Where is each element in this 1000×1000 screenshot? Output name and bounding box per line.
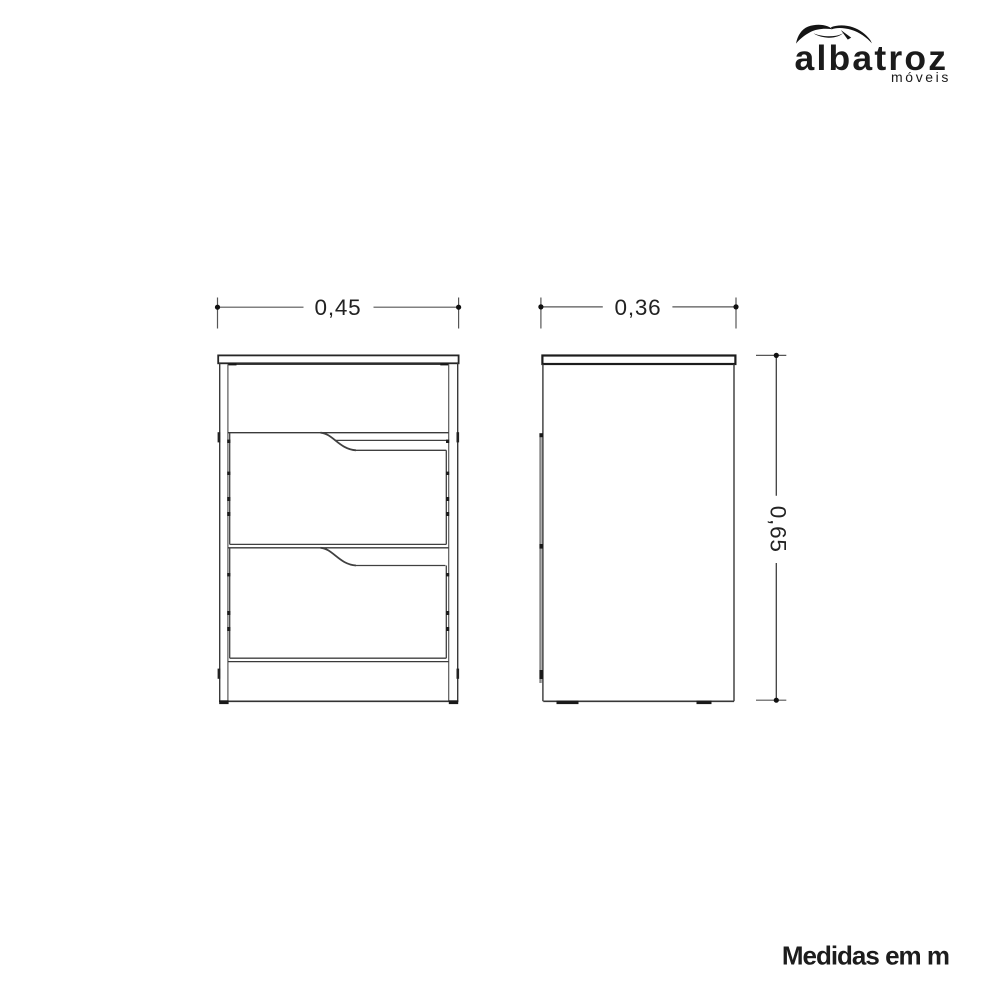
svg-text:móveis: móveis bbox=[891, 69, 951, 85]
svg-text:0,45: 0,45 bbox=[315, 295, 362, 320]
svg-text:Medidas em m: Medidas em m bbox=[782, 941, 949, 971]
svg-text:0,36: 0,36 bbox=[615, 295, 662, 320]
svg-text:0,65: 0,65 bbox=[765, 506, 790, 553]
